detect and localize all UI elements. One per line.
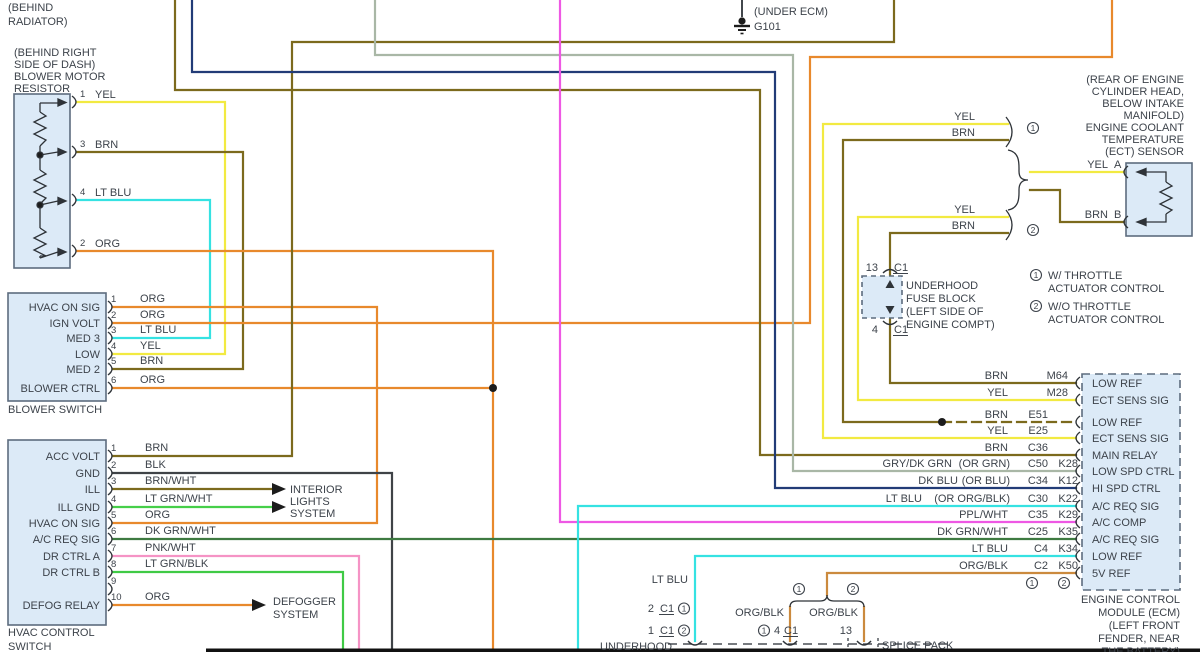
wire-color-label: BRN xyxy=(145,442,168,454)
ecm-terminal: HI SPD CTRL xyxy=(1092,483,1160,495)
underhood-label: UNDERHOOD xyxy=(600,641,672,652)
wire-color-label: LT BLU xyxy=(95,187,131,199)
wire-color-label: BRN xyxy=(1085,209,1108,221)
wire-color-label: GRY/DK GRN xyxy=(883,458,953,470)
pin-letter: B xyxy=(1114,209,1121,221)
pin-number: 3 xyxy=(111,325,116,336)
terminal-label: LOW xyxy=(75,349,101,361)
wire-brn-to-sensor xyxy=(1030,190,1124,222)
terminal-code: K34 xyxy=(1058,543,1078,555)
defogger-system: DEFOGGER xyxy=(273,596,336,608)
resistor-location: (BEHIND RIGHT xyxy=(14,47,97,59)
wire-color-label: ORG/BLK xyxy=(809,607,859,619)
ecm-name: FENDER, NEAR xyxy=(1098,633,1180,645)
pin-number: 4 xyxy=(111,494,116,505)
labels: (BEHIND RADIATOR) (BEHIND RIGHT SIDE OF … xyxy=(8,2,1184,652)
ecm-terminal: LOW SPD CTRL xyxy=(1092,466,1175,478)
defogger-arrow xyxy=(252,599,266,611)
terminal-label: DR CTRL B xyxy=(42,567,100,579)
option-symbol: 1 xyxy=(797,584,802,594)
ecm-terminal: ECT SENS SIG xyxy=(1092,395,1169,407)
wire-color-label: ORG xyxy=(140,309,165,321)
interior-lights-arrow xyxy=(272,483,286,495)
wire-color-alt: (OR ORG/BLK) xyxy=(934,493,1010,505)
terminal-code: K29 xyxy=(1058,509,1078,521)
wire-color-label: ORG/BLK xyxy=(735,607,785,619)
terminal-code: M28 xyxy=(1047,387,1068,399)
interior-lights-system: LIGHTS xyxy=(290,496,330,508)
terminal-label: MED 2 xyxy=(66,364,100,376)
pin-number: 5 xyxy=(111,356,116,367)
ecm-terminal: LOW REF xyxy=(1092,551,1142,563)
ecm-terminal: 5V REF xyxy=(1092,568,1131,580)
ect-location: (ECT) SENSOR xyxy=(1105,146,1184,158)
terminal-label: ILL GND xyxy=(58,502,100,514)
ecm-terminal: LOW REF xyxy=(1092,417,1142,429)
pin-number: 4 xyxy=(80,187,85,198)
splice-pack-label: SPLICE PACK xyxy=(882,640,954,652)
wire-color-label: ORG xyxy=(145,509,170,521)
terminal-code: K22 xyxy=(1058,493,1078,505)
terminal-code: C25 xyxy=(1028,526,1048,538)
fuse-connector: C1 xyxy=(894,262,908,274)
ecm-terminal: MAIN RELAY xyxy=(1092,450,1158,462)
pin-number: 8 xyxy=(111,559,116,570)
ground-symbol-g101 xyxy=(734,17,750,33)
component-name-blower-switch: BLOWER SWITCH xyxy=(8,404,102,416)
resistor-location: BLOWER MOTOR xyxy=(14,71,106,83)
ect-location: CYLINDER HEAD, xyxy=(1092,86,1184,98)
note-behind-radiator: RADIATOR) xyxy=(8,16,68,28)
wire-color-label: BRN/WHT xyxy=(145,475,197,487)
wire-color-label: ORG xyxy=(95,238,120,250)
terminal-label: ILL xyxy=(85,484,100,496)
throttle-note: ACTUATOR CONTROL xyxy=(1048,283,1164,295)
pin-number: 4 xyxy=(774,625,780,637)
interior-lights-arrow xyxy=(272,501,286,513)
ecm-name: THE BATTERY) xyxy=(1102,646,1180,652)
terminal-code: C35 xyxy=(1028,509,1048,521)
pin-letter: A xyxy=(1114,159,1122,171)
wire-orgblk-5vref xyxy=(827,573,1076,595)
wire-color-label: ORG/BLK xyxy=(959,560,1009,572)
option-symbol: 1 xyxy=(1031,123,1036,133)
pin-number: 3 xyxy=(111,476,116,487)
option-symbol: 2 xyxy=(682,626,687,636)
wire-ltblu-lowref xyxy=(695,556,1076,641)
wire-color-label: LT BLU xyxy=(972,543,1008,555)
option-symbol: 1 xyxy=(1034,270,1039,280)
terminal-code: C4 xyxy=(1034,543,1048,555)
terminal-code: K50 xyxy=(1058,560,1078,572)
system-arrows xyxy=(252,483,286,611)
throttle-note: W/ THROTTLE xyxy=(1048,270,1122,282)
wire-color-label: YEL xyxy=(987,387,1008,399)
wire-color-label: YEL xyxy=(954,204,975,216)
ect-location: MANIFOLD) xyxy=(1124,110,1185,122)
wire-color-label: PNK/WHT xyxy=(145,542,196,554)
resistor-location: SIDE OF DASH) xyxy=(14,59,95,71)
option-symbol: 1 xyxy=(762,626,767,636)
terminal-code: E25 xyxy=(1028,425,1048,437)
terminal-label: HVAC ON SIG xyxy=(29,518,100,530)
wiring-diagram-page: (BEHIND RADIATOR) (BEHIND RIGHT SIDE OF … xyxy=(0,0,1200,652)
ect-sensor-box xyxy=(1126,163,1192,236)
wire-org-ign-volt xyxy=(113,0,1112,323)
wire-color-label: YEL xyxy=(140,340,161,352)
terminal-label: DR CTRL A xyxy=(43,551,101,563)
wire-color-label: ORG xyxy=(145,591,170,603)
terminal-code: K12 xyxy=(1058,475,1078,487)
pin-number: 1 xyxy=(111,294,116,305)
wire-color-label: BRN xyxy=(952,220,975,232)
pin-number: 2 xyxy=(111,310,116,321)
throttle-note: W/O THROTTLE xyxy=(1048,301,1131,313)
wire-color-label: BRN xyxy=(985,409,1008,421)
wire-color-label: YEL xyxy=(954,111,975,123)
bottom-bar xyxy=(206,649,1200,652)
terminal-code: E51 xyxy=(1028,409,1048,421)
wire-brn-main-relay xyxy=(175,0,1076,455)
pin-number: 2 xyxy=(648,603,654,615)
ecm-name: MODULE (ECM) xyxy=(1098,607,1180,619)
wire-color-label: YEL xyxy=(1087,159,1108,171)
defogger-system: SYSTEM xyxy=(273,609,318,621)
ect-location: ENGINE COOLANT xyxy=(1086,122,1185,134)
ecm-name: ENGINE CONTROL xyxy=(1081,594,1180,606)
fuse-block-label: UNDERHOOD xyxy=(906,280,978,292)
terminal-code: C2 xyxy=(1034,560,1048,572)
ect-location: (REAR OF ENGINE xyxy=(1086,74,1184,86)
wire-color-label: DK BLU xyxy=(918,475,958,487)
terminal-label: HVAC ON SIG xyxy=(29,302,100,314)
note-behind-radiator: (BEHIND xyxy=(8,2,53,14)
option-symbol: 2 xyxy=(851,584,856,594)
wire-color-label: BRN xyxy=(95,139,118,151)
wire-color-label: BRN xyxy=(952,127,975,139)
option-symbol: 1 xyxy=(682,604,687,614)
ground-label: G101 xyxy=(754,21,781,33)
fuse-pin: 13 xyxy=(866,262,878,274)
pin-number: 1 xyxy=(648,625,654,637)
wire-color-label: LT GRN/BLK xyxy=(145,558,209,570)
junction-dot xyxy=(938,418,946,426)
terminal-code: C36 xyxy=(1028,442,1048,454)
fuse-block-label: ENGINE COMPT) xyxy=(906,319,995,331)
wire-color-label: BRN xyxy=(985,442,1008,454)
ecm-terminal: A/C REQ SIG xyxy=(1092,534,1159,546)
option-symbol: 2 xyxy=(1062,578,1067,588)
interior-lights-system: SYSTEM xyxy=(290,508,335,520)
terminal-label: GND xyxy=(76,468,101,480)
terminal-code: C50 xyxy=(1028,458,1048,470)
ecm-terminal: ECT SENS SIG xyxy=(1092,433,1169,445)
connector-code: C1 xyxy=(784,625,798,637)
wire-color-label: LT BLU xyxy=(140,324,176,336)
wire-color-label: DK GRN/WHT xyxy=(145,525,216,537)
wire-color-alt: (OR BLU) xyxy=(962,475,1010,487)
wire-color-label: DK GRN/WHT xyxy=(937,526,1008,538)
fuse-pin: 4 xyxy=(872,324,878,336)
terminal-code: C34 xyxy=(1028,475,1048,487)
ecm-terminal: LOW REF xyxy=(1092,378,1142,390)
terminal-label: IGN VOLT xyxy=(49,318,100,330)
fuse-block-label: FUSE BLOCK xyxy=(906,293,976,305)
junction-dot xyxy=(489,384,497,392)
ecm-terminal: A/C COMP xyxy=(1092,517,1146,529)
terminal-label: BLOWER CTRL xyxy=(21,383,100,395)
ect-location: TEMPERATURE xyxy=(1102,134,1184,146)
wire-color-label: ORG xyxy=(140,374,165,386)
wire-color-label: BLK xyxy=(145,459,166,471)
ecm-name: (LEFT FRONT xyxy=(1109,620,1181,632)
pin-number: 2 xyxy=(80,238,85,249)
ecm-terminal: A/C REQ SIG xyxy=(1092,501,1159,513)
terminal-code: K35 xyxy=(1058,526,1078,538)
pin-number: 13 xyxy=(840,625,852,637)
wire-color-label: LT BLU xyxy=(652,574,688,586)
wire-color-label: BRN xyxy=(140,355,163,367)
terminal-label: ACC VOLT xyxy=(46,451,100,463)
option-symbol: 2 xyxy=(1031,225,1036,235)
component-name-hvac-switch: SWITCH xyxy=(8,641,51,652)
wire-color-label: LT GRN/WHT xyxy=(145,493,213,505)
component-name-hvac-switch: HVAC CONTROL xyxy=(8,627,95,639)
terminal-code: M64 xyxy=(1047,370,1068,382)
ground-note: (UNDER ECM) xyxy=(754,6,828,18)
pin-number: 3 xyxy=(80,139,85,150)
throttle-note: ACTUATOR CONTROL xyxy=(1048,314,1164,326)
terminal-label: MED 3 xyxy=(66,333,100,345)
wire-color-alt: (OR GRN) xyxy=(959,458,1010,470)
connector-code: C1 xyxy=(660,603,674,615)
wire-color-label: YEL xyxy=(95,89,116,101)
pin-number: 6 xyxy=(111,526,116,537)
wire-color-label: BRN xyxy=(985,370,1008,382)
resistor-location: RESISTOR xyxy=(14,83,70,95)
wire-color-label: PPL/WHT xyxy=(959,509,1008,521)
pin-number: 10 xyxy=(111,592,122,603)
wiring-diagram: (BEHIND RADIATOR) (BEHIND RIGHT SIDE OF … xyxy=(0,0,1200,652)
terminal-code: K28 xyxy=(1058,458,1078,470)
terminal-label: DEFOG RELAY xyxy=(23,600,101,612)
wire-dkblu-hispd xyxy=(192,0,1076,488)
ect-location: BELOW INTAKE xyxy=(1102,98,1184,110)
connector-code: C1 xyxy=(660,625,674,637)
pin-number: 9 xyxy=(111,576,116,587)
pin-number: 7 xyxy=(111,543,116,554)
terminal-code: C30 xyxy=(1028,493,1048,505)
pin-number: 1 xyxy=(111,443,116,454)
pin-number: 2 xyxy=(111,460,116,471)
option-symbol: 2 xyxy=(1034,301,1039,311)
pin-number: 6 xyxy=(111,375,116,386)
terminal-label: A/C REQ SIG xyxy=(33,534,100,546)
option-symbol: 1 xyxy=(1030,578,1035,588)
interior-lights-system: INTERIOR xyxy=(290,484,343,496)
wire-color-label: ORG xyxy=(140,293,165,305)
pin-number: 5 xyxy=(111,510,116,521)
pin-number: 1 xyxy=(80,89,85,100)
pin-number: 4 xyxy=(111,341,116,352)
fuse-block-label: (LEFT SIDE OF xyxy=(906,306,984,318)
wire-color-label: LT BLU xyxy=(886,493,922,505)
wire-color-label: YEL xyxy=(987,425,1008,437)
fuse-block-box xyxy=(862,276,902,318)
